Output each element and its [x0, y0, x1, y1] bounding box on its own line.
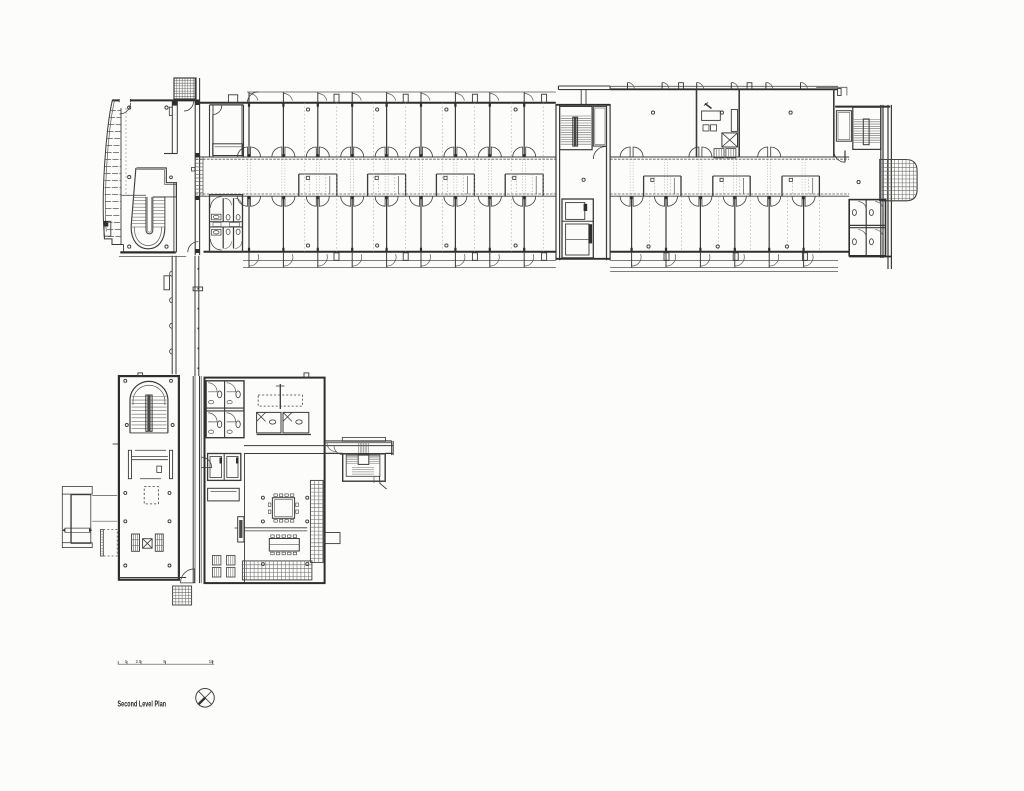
svg-text:Second Level Plan: Second Level Plan	[118, 701, 167, 709]
svg-text:2.5: 2.5	[136, 659, 142, 664]
svg-text:10: 10	[209, 659, 214, 664]
